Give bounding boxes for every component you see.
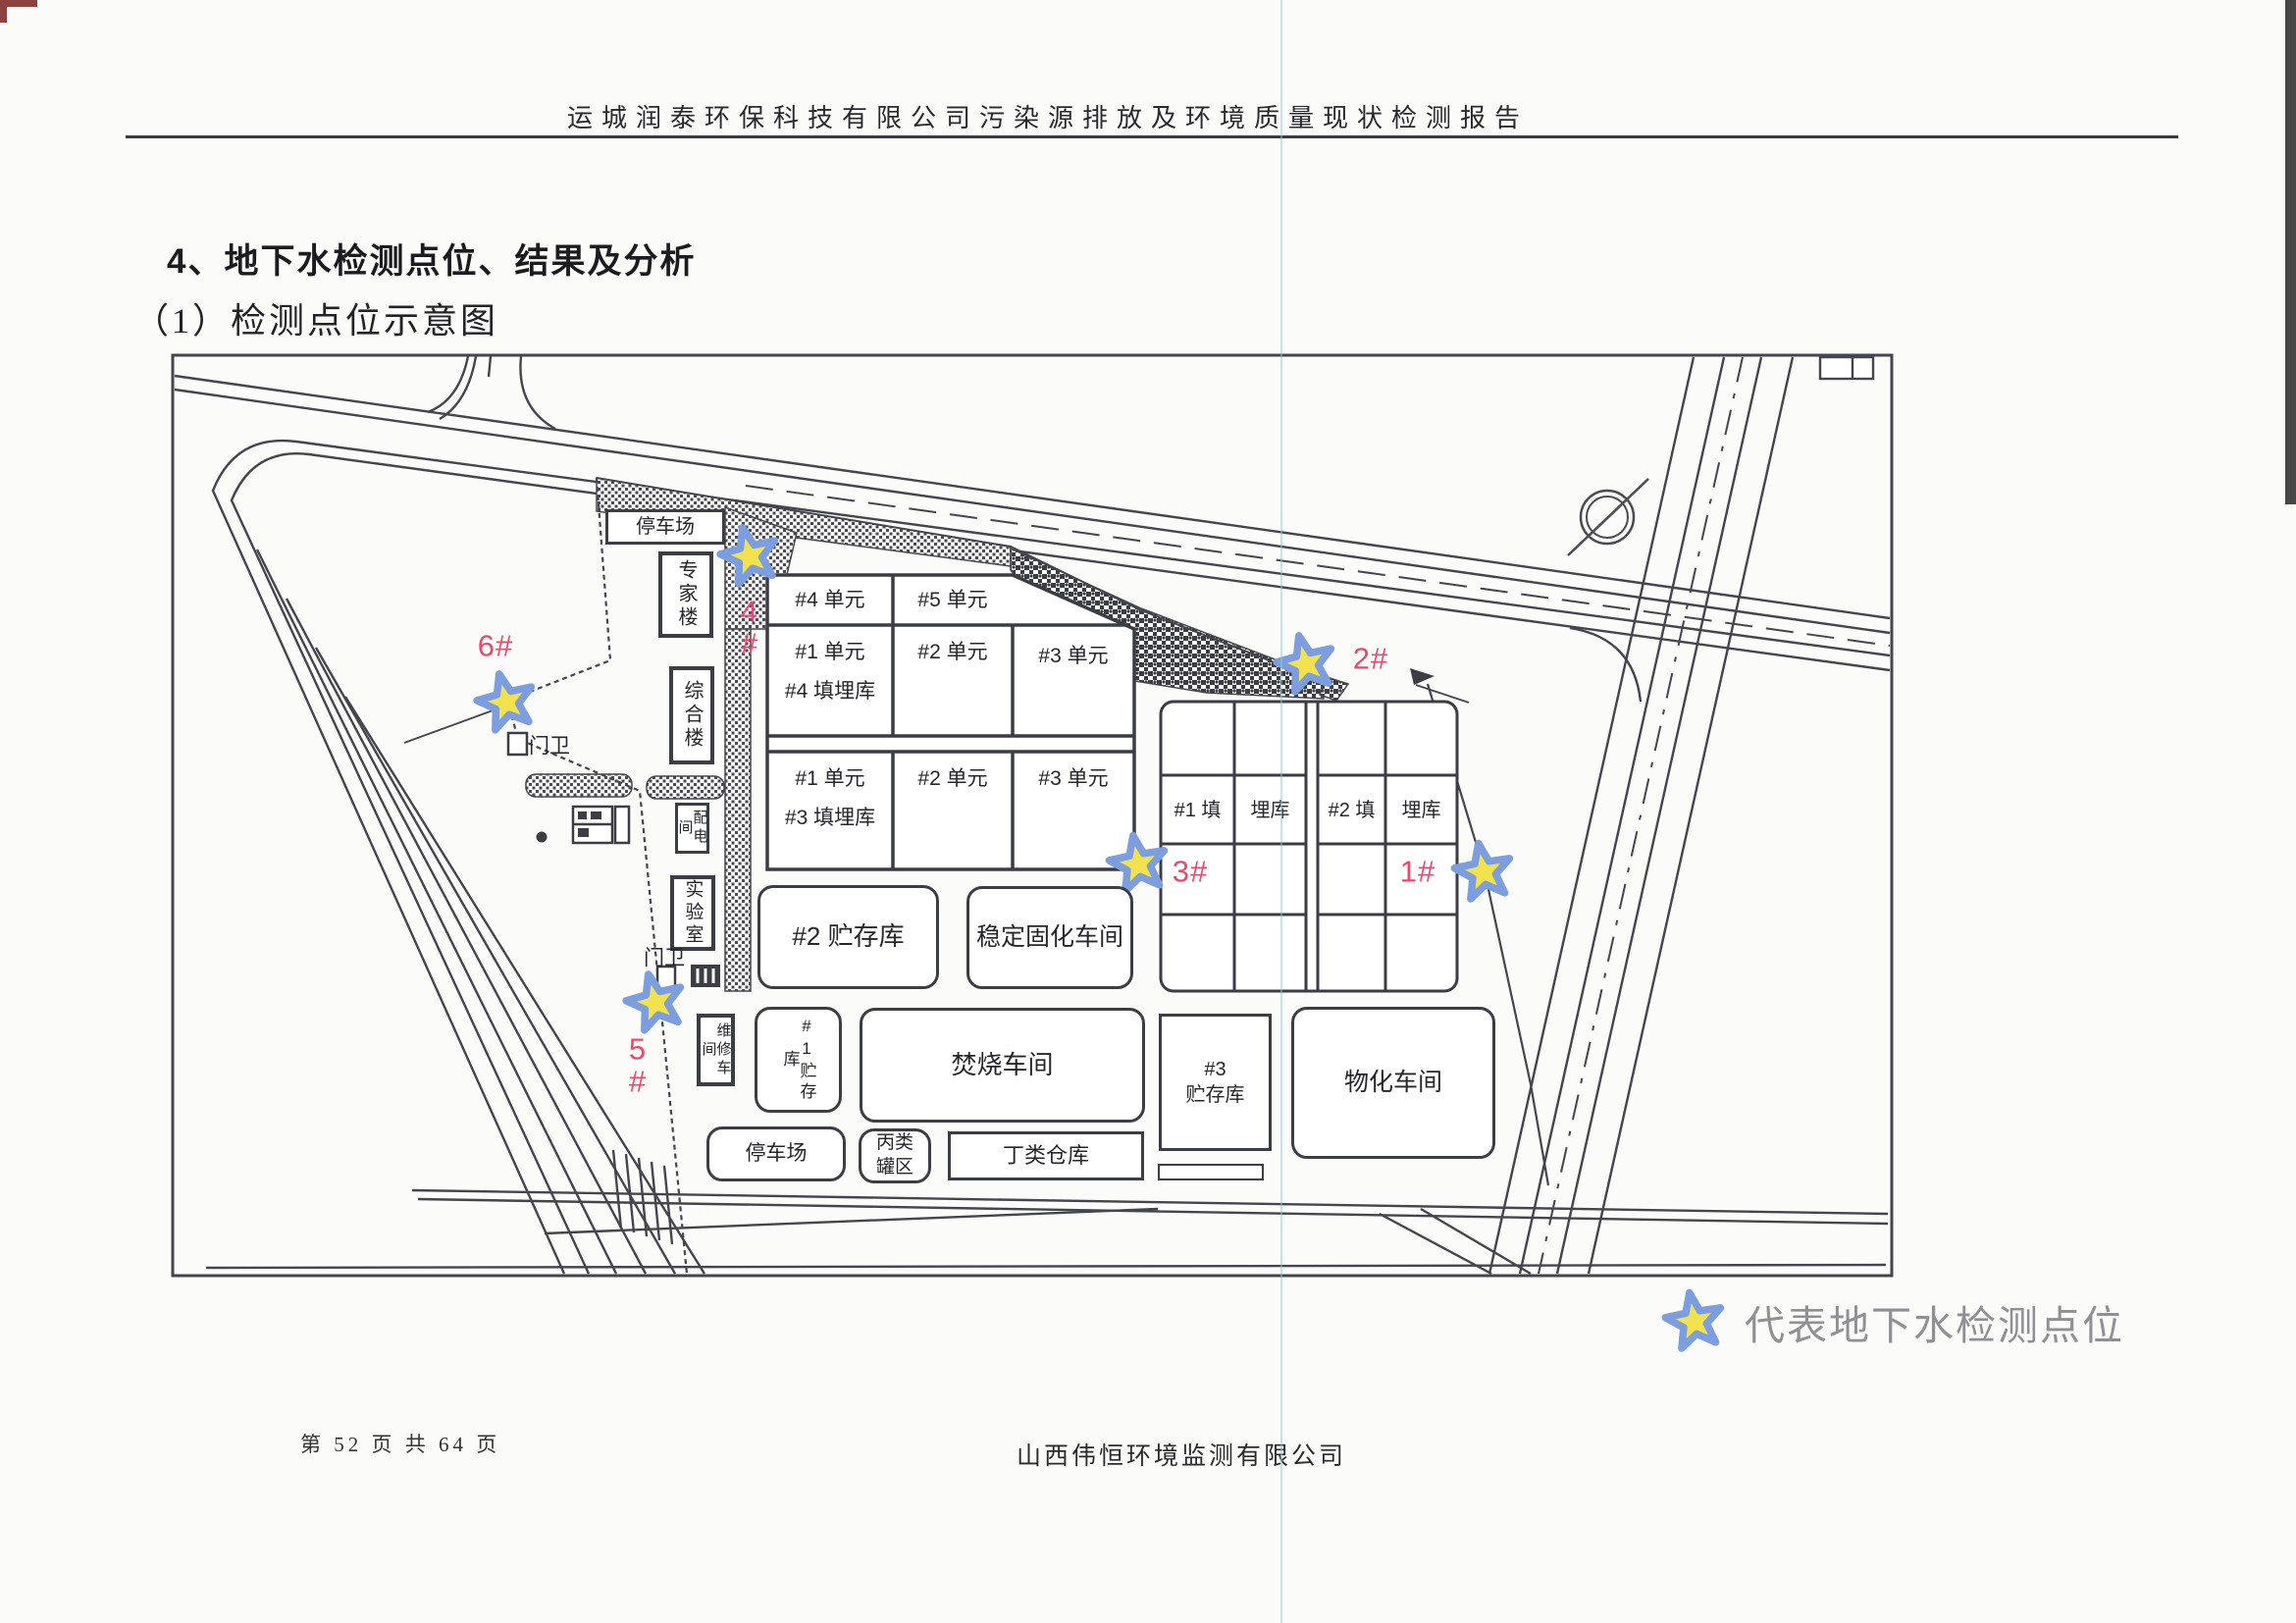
building-storage-2: #2 贮存库: [757, 885, 939, 989]
building-gate-south: 门卫: [644, 942, 685, 971]
building-incineration-workshop: 焚烧车间: [860, 1008, 1145, 1123]
landfill-cell-row1-1: #5 单元: [893, 575, 1013, 625]
building-physchem-workshop: 物化车间: [1291, 1007, 1495, 1159]
monitoring-star-1: [1451, 839, 1516, 901]
flag-icon: [1410, 668, 1435, 685]
landfill-cell-row2-1: #2 单元: [893, 625, 1013, 736]
building-tank-area: 丙类 罐区: [859, 1128, 931, 1183]
tree-dot: [537, 832, 548, 843]
building-storage-1: #1贮存库: [755, 1007, 842, 1113]
star-icon: [1658, 1285, 1731, 1358]
building-warehouse-d: 丁类仓库: [948, 1131, 1144, 1180]
landfill-east-cell-3: 埋库: [1385, 785, 1457, 836]
monitoring-star-5: [621, 968, 688, 1032]
monitoring-label-5: 5 #: [629, 1033, 647, 1097]
monitoring-label-1: 1#: [1400, 857, 1435, 889]
building-storage-3: #3 贮存库: [1159, 1014, 1272, 1151]
scanner-streak: [1280, 0, 1282, 1623]
landfill-cell-row2-0: #1 单元 #4 填埋库: [767, 625, 893, 736]
site-plan-map: [0, 0, 2296, 1623]
building-parking-north: 停车场: [605, 509, 725, 545]
monitoring-star-6: [472, 667, 539, 732]
building-laboratory: 实验室: [670, 875, 715, 951]
parking-strip: [1159, 1165, 1263, 1179]
landfill-east-cell-0: #1 填: [1161, 785, 1234, 836]
building-stabilization-workshop: 稳定固化车间: [966, 886, 1133, 989]
landfill-cell-row1-0: #4 单元: [767, 575, 893, 625]
gatehouse-north-box: [508, 733, 527, 755]
landfill-cell-row3-2: #3 单元: [1013, 752, 1134, 869]
landfill-cell-row3-1: #2 单元: [893, 752, 1013, 869]
building-power-room: 配电间: [675, 803, 709, 854]
scan-edge-shadow: [2285, 0, 2296, 504]
monitoring-label-4: 4 #: [741, 596, 758, 659]
landfill-east-cell-1: 埋库: [1234, 785, 1306, 836]
building-gate-north: 门卫: [529, 730, 570, 759]
monitoring-label-6: 6#: [478, 631, 513, 663]
building-expert-building: 专家楼: [658, 551, 713, 638]
frame-notch: [1820, 357, 1873, 379]
landfill-east-cell-2: #2 填: [1318, 785, 1385, 836]
building-parking-south: 停车场: [706, 1126, 846, 1181]
compass-icon: [1568, 479, 1648, 555]
monitoring-label-3: 3#: [1173, 857, 1208, 889]
map-legend: 代表地下水检测点位: [1658, 1285, 2124, 1358]
scan-corner-mark: [0, 0, 7, 23]
legend-label: 代表地下水检测点位: [1745, 1292, 2124, 1351]
landfill-cell-row3-0: #1 单元 #3 填埋库: [767, 752, 893, 869]
building-office-building: 综合楼: [669, 666, 714, 764]
building-maintenance-workshop: 维修车间: [697, 1014, 735, 1086]
landfill-cell-row2-2: #3 单元: [1013, 629, 1134, 736]
monitoring-label-2: 2#: [1353, 644, 1388, 676]
landfill-east-grid: [1161, 702, 1457, 991]
